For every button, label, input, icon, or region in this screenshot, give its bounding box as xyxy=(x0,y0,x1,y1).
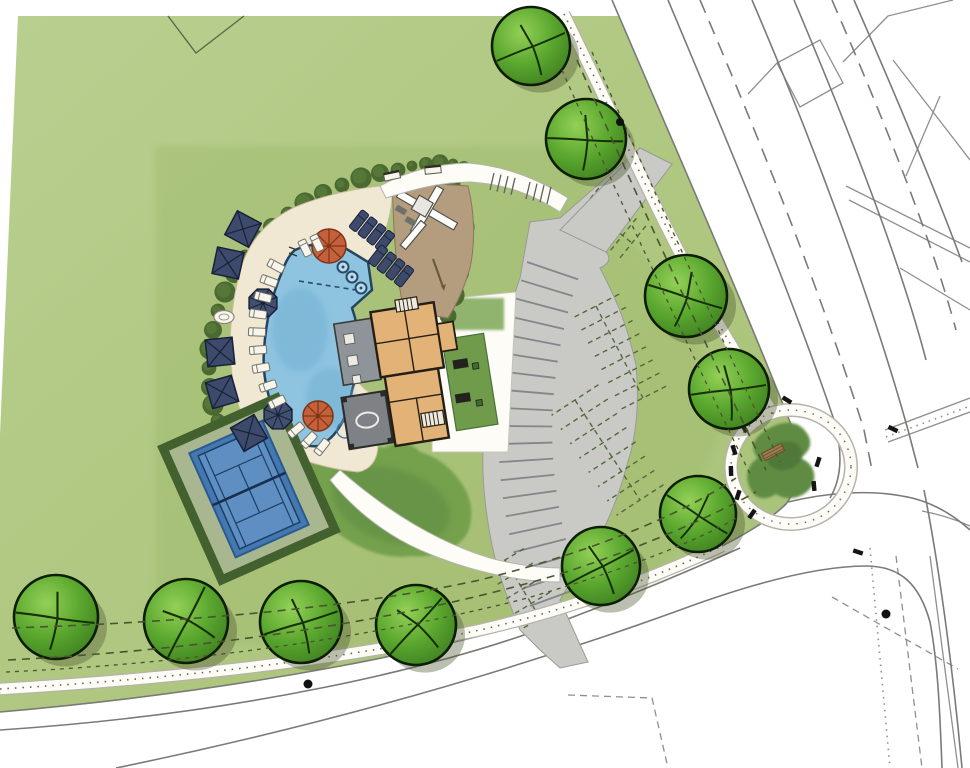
hedge-shrub-highlight xyxy=(337,180,345,188)
bench-back xyxy=(425,166,441,168)
umbrella-pole xyxy=(276,413,280,417)
courtyard-planter xyxy=(476,399,483,406)
lounge-chair-body xyxy=(249,309,267,319)
clubhouse-entry-steps xyxy=(395,297,419,312)
clubhouse-main-hall xyxy=(370,302,444,377)
hedge-shrub-highlight xyxy=(352,169,366,183)
umbrella-pole xyxy=(316,414,320,418)
tree-canopy xyxy=(260,581,342,663)
shade-structure xyxy=(212,247,244,279)
clubhouse-south-steps xyxy=(421,410,445,427)
lounge-chair xyxy=(249,345,267,354)
lounge-chair xyxy=(248,328,265,337)
curb-tick xyxy=(729,466,734,476)
lounge-chair-headrest xyxy=(254,346,255,354)
lounge-chair-body xyxy=(249,345,267,354)
utility-marker-dot xyxy=(882,610,891,619)
hedge-shrub-highlight xyxy=(421,159,428,166)
lounge-chair xyxy=(249,309,267,319)
hedge-shrub xyxy=(407,161,418,172)
spa-jet-center xyxy=(360,287,363,290)
utility-marker-dot xyxy=(616,118,624,126)
hedge-shrub-highlight xyxy=(373,166,384,177)
tree-canopy xyxy=(689,349,769,429)
patio-table xyxy=(214,311,234,324)
clubhouse-south-wing xyxy=(385,368,449,446)
site-plan-stage xyxy=(0,0,970,768)
tree-canopy xyxy=(645,255,727,337)
tree-canopy xyxy=(376,585,456,665)
tree-canopy xyxy=(14,575,98,659)
umbrella-pole xyxy=(327,244,331,248)
clubhouse-pavilion xyxy=(341,391,393,449)
hedge-shrub-highlight xyxy=(409,163,413,167)
orange-umbrella xyxy=(303,401,333,431)
hedge-shrub-highlight xyxy=(206,323,217,334)
shade-structure xyxy=(205,337,235,367)
tree-canopy xyxy=(492,7,570,85)
park-bench xyxy=(425,166,442,175)
curb-tick xyxy=(811,481,816,491)
spa-jet-center xyxy=(342,266,345,269)
utility-marker-dot xyxy=(304,680,313,689)
lounge-chair-body xyxy=(248,328,265,337)
spa-jet-center xyxy=(351,276,354,279)
courtyard-planter xyxy=(472,363,479,370)
hedge-shrub-highlight xyxy=(316,186,327,197)
hedge-shrub-highlight xyxy=(216,283,230,297)
site-plan-drawing xyxy=(0,0,970,768)
